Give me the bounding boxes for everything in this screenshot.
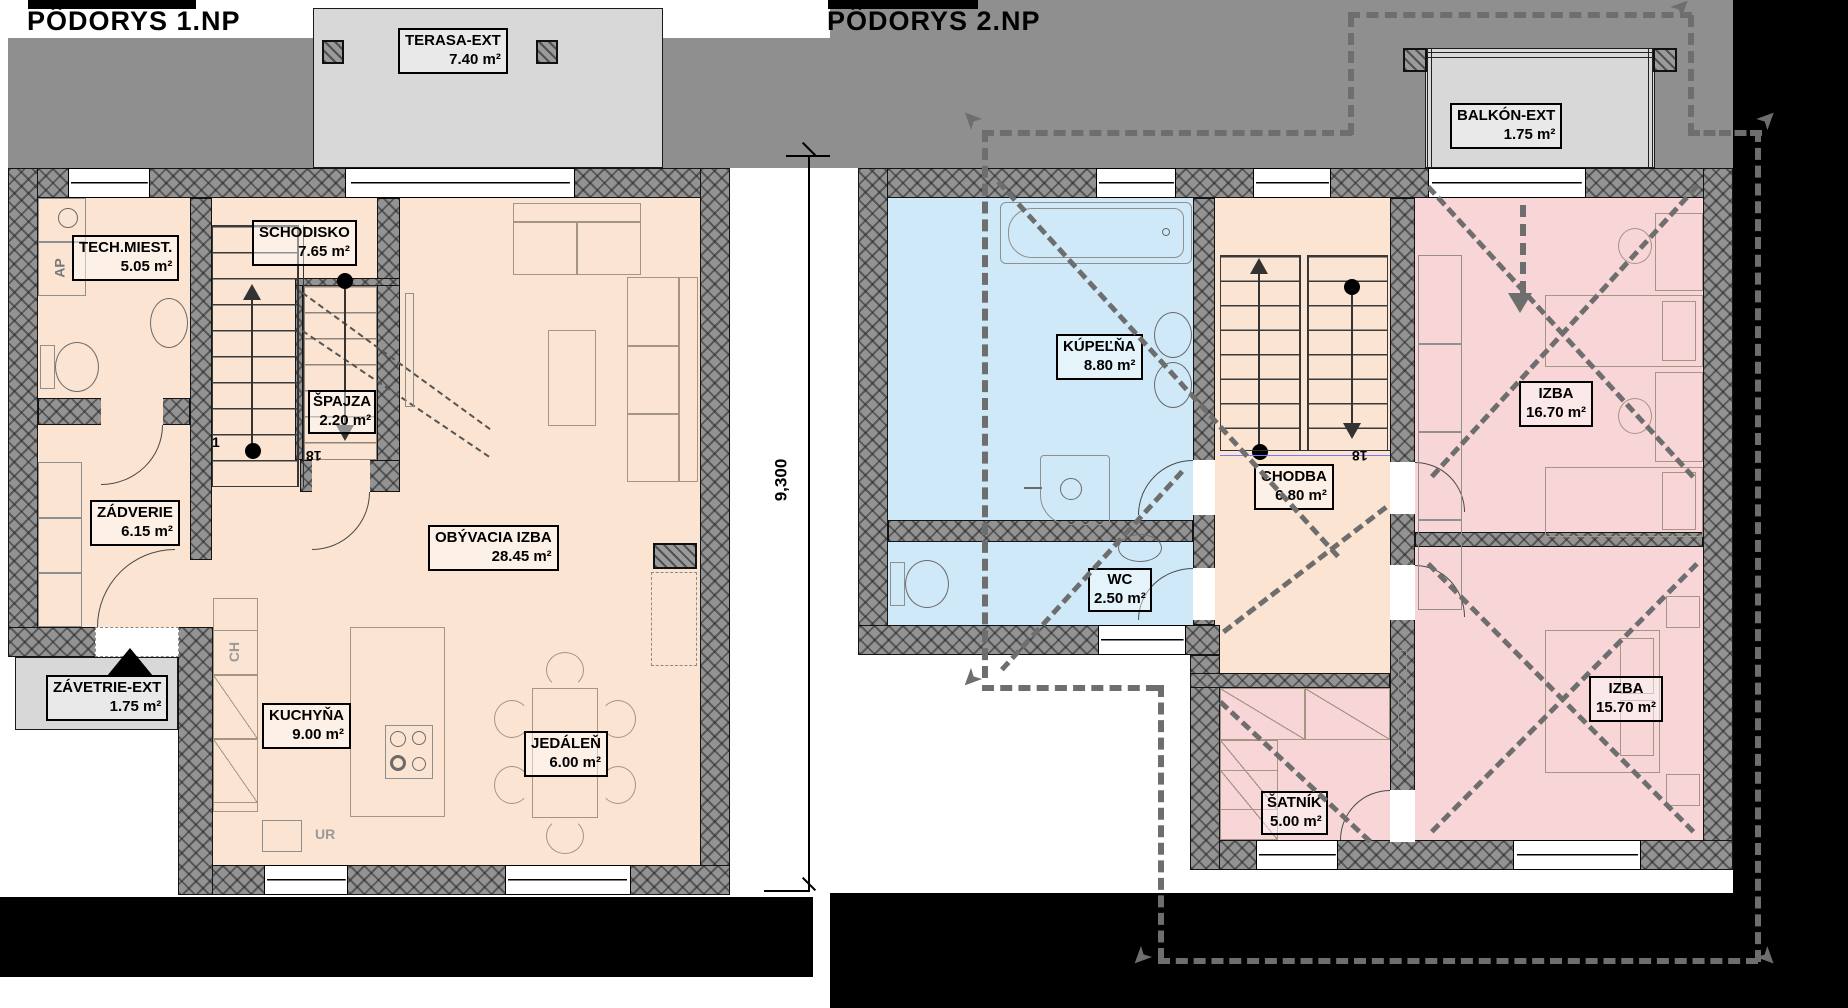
shower-drain bbox=[1060, 478, 1082, 500]
wall bbox=[178, 627, 213, 895]
bathtub-inner bbox=[1008, 208, 1184, 258]
stair-flight-left bbox=[1220, 255, 1300, 451]
terrace-door-window bbox=[345, 168, 575, 198]
wall bbox=[8, 168, 38, 657]
window bbox=[1256, 840, 1338, 870]
dimension-value: 9,300 bbox=[771, 459, 791, 502]
room-label-izba1: IZBA 16.70 m² bbox=[1519, 381, 1593, 427]
balcony-post-right bbox=[1653, 48, 1677, 72]
roof-outline bbox=[1348, 15, 1354, 135]
room-label-kuchyna: KUCHYŇA 9.00 m² bbox=[262, 703, 351, 749]
wardrobe-dashed-symbol bbox=[651, 572, 697, 666]
stair-dot bbox=[1344, 279, 1360, 295]
door-opening bbox=[1390, 790, 1415, 842]
stair-walkline bbox=[251, 295, 253, 451]
window bbox=[1096, 168, 1176, 198]
stair-number-last: 18 bbox=[306, 448, 322, 464]
room-label-tech: TECH.MIEST. 5.05 m² bbox=[72, 235, 179, 281]
washbasin-symbol bbox=[150, 298, 188, 348]
mask-right bbox=[1733, 0, 1848, 1008]
stove-symbol bbox=[653, 543, 697, 569]
wall bbox=[178, 865, 730, 895]
washer-label: AP bbox=[52, 258, 68, 277]
sofa-cushion-line bbox=[627, 413, 678, 415]
door-opening bbox=[1390, 462, 1415, 514]
stair-up-arrow bbox=[243, 284, 261, 300]
door-opening bbox=[1193, 568, 1215, 620]
wall bbox=[190, 198, 212, 560]
roof-outline bbox=[1755, 130, 1761, 962]
pillow-symbol bbox=[1662, 301, 1696, 361]
wardrobe-symbol bbox=[1305, 688, 1390, 740]
stair-divider bbox=[1300, 255, 1308, 451]
room-label-spajza: ŠPAJZA 2.20 m² bbox=[308, 390, 376, 434]
dimension-tick bbox=[764, 890, 810, 892]
roof-outline bbox=[982, 130, 1352, 136]
roof-outline bbox=[1158, 685, 1164, 960]
sink-unit-symbol bbox=[262, 820, 302, 852]
kitchen-island bbox=[350, 627, 445, 817]
nightstand-symbol bbox=[1666, 774, 1700, 806]
room-label-zavetrie: ZÁVETRIE-EXT 1.75 m² bbox=[46, 675, 168, 721]
window bbox=[1253, 168, 1331, 198]
wall bbox=[1190, 673, 1390, 688]
roof-outline bbox=[982, 685, 1158, 691]
stair-walkline bbox=[1258, 268, 1260, 452]
sofa-symbol bbox=[627, 277, 698, 482]
window bbox=[264, 865, 348, 895]
room-label-schodisko: SCHODISKO 7.65 m² bbox=[252, 220, 357, 266]
toilet-tank-symbol bbox=[890, 562, 905, 606]
wardrobe-divider bbox=[1418, 343, 1462, 345]
roof-slope-line bbox=[1520, 205, 1526, 293]
room-label-obyvacia: OBÝVACIA IZBA 28.45 m² bbox=[428, 525, 559, 571]
balcony-railing bbox=[1425, 52, 1655, 58]
window bbox=[1098, 625, 1186, 655]
panel-symbol bbox=[1398, 650, 1407, 760]
sink-unit-label: UR bbox=[315, 826, 335, 842]
room-label-chodba: CHODBA 6.80 m² bbox=[1254, 464, 1334, 510]
wall bbox=[1703, 168, 1733, 870]
sink-symbol bbox=[58, 208, 78, 228]
closet-symbol bbox=[38, 462, 82, 627]
room-label-kupelna: KÚPEĽŇA 8.80 m² bbox=[1056, 334, 1143, 380]
toilet-symbol bbox=[55, 342, 99, 392]
coffee-table bbox=[548, 330, 596, 426]
room-label-balkon: BALKÓN-EXT 1.75 m² bbox=[1450, 103, 1562, 149]
chair-symbol bbox=[546, 652, 584, 688]
burner bbox=[390, 755, 406, 771]
sofa-cushion-line bbox=[627, 345, 678, 347]
stair-dot bbox=[337, 273, 353, 289]
chair-symbol bbox=[546, 818, 584, 854]
closet-divider bbox=[38, 517, 82, 519]
room-label-wc: WC 2.50 m² bbox=[1088, 568, 1152, 612]
balcony-door bbox=[1428, 168, 1586, 198]
wardrobe-strip bbox=[1418, 255, 1462, 610]
cabinet-symbol bbox=[213, 675, 258, 739]
roof-outline bbox=[1158, 958, 1758, 964]
burner bbox=[390, 731, 406, 747]
mask-bottom-right bbox=[830, 893, 1848, 1008]
cabinet-symbol bbox=[213, 739, 258, 803]
roof-outline bbox=[1688, 15, 1694, 135]
window bbox=[68, 168, 150, 198]
chair-symbol bbox=[1618, 228, 1652, 264]
door-opening bbox=[312, 460, 370, 492]
roof-slope-arrow bbox=[1508, 293, 1532, 313]
balcony-post-left bbox=[1403, 48, 1427, 72]
terrace-post-left bbox=[322, 40, 344, 64]
bathtub-drain bbox=[1162, 228, 1170, 236]
stair-walkline bbox=[1351, 287, 1353, 423]
mask-bottom-left bbox=[0, 897, 813, 977]
radiator-symbol bbox=[405, 293, 414, 407]
window bbox=[505, 865, 631, 895]
desk-symbol bbox=[1655, 372, 1703, 462]
wall bbox=[377, 198, 400, 492]
entrance-arrow bbox=[107, 648, 153, 676]
sofa-back-line bbox=[678, 277, 680, 482]
room-label-jedalen: JEDÁLEŇ 6.00 m² bbox=[524, 731, 608, 777]
plan2-title: PÔDORYS 2.NP bbox=[827, 6, 1041, 37]
wall bbox=[700, 168, 730, 895]
toilet-tank-symbol bbox=[40, 345, 55, 389]
dimension-line bbox=[808, 157, 810, 892]
wall bbox=[858, 168, 888, 655]
room-label-terasa: TERASA-EXT 7.40 m² bbox=[398, 28, 508, 74]
roof-outline bbox=[1348, 12, 1692, 18]
dimension-tick bbox=[786, 155, 830, 157]
nightstand-symbol bbox=[1666, 596, 1700, 628]
room-label-zadverie: ZÁDVERIE 6.15 m² bbox=[90, 500, 180, 546]
stair-number-first: 1 bbox=[212, 434, 220, 450]
plan1-title: PÔDORYS 1.NP bbox=[27, 6, 241, 37]
room-label-izba2: IZBA 15.70 m² bbox=[1589, 676, 1663, 722]
stair-down-arrow bbox=[1343, 423, 1361, 439]
roof-outline bbox=[1688, 130, 1762, 136]
shower-arm bbox=[1024, 487, 1042, 489]
door-opening bbox=[1390, 565, 1415, 620]
balcony-railing bbox=[1427, 48, 1432, 168]
sofa-cushion-line bbox=[576, 221, 578, 275]
wardrobe-divider bbox=[1418, 519, 1462, 521]
roof-outline bbox=[982, 130, 988, 678]
stair-number-last: 18 bbox=[1352, 448, 1368, 464]
door-opening bbox=[101, 398, 163, 425]
door-opening bbox=[1193, 460, 1215, 515]
closet-divider bbox=[38, 572, 82, 574]
washbasin-symbol bbox=[1154, 312, 1192, 358]
room-label-satnik: ŠATNÍK 5.00 m² bbox=[1261, 791, 1328, 835]
pillow-symbol bbox=[1662, 472, 1696, 530]
window bbox=[1513, 840, 1641, 870]
wardrobe-divider bbox=[1418, 431, 1462, 433]
floorplan-canvas: PÔDORYS 1.NP PÔDORYS 2.NP TERASA-EXT 7.4… bbox=[0, 0, 1848, 1008]
stair-up-arrow bbox=[1250, 258, 1268, 274]
toilet-symbol bbox=[905, 560, 949, 608]
burner bbox=[412, 731, 426, 745]
terrace-post-right bbox=[536, 40, 558, 64]
burner bbox=[412, 757, 426, 771]
fridge-label: CH bbox=[226, 642, 242, 662]
stair-dot bbox=[245, 443, 261, 459]
